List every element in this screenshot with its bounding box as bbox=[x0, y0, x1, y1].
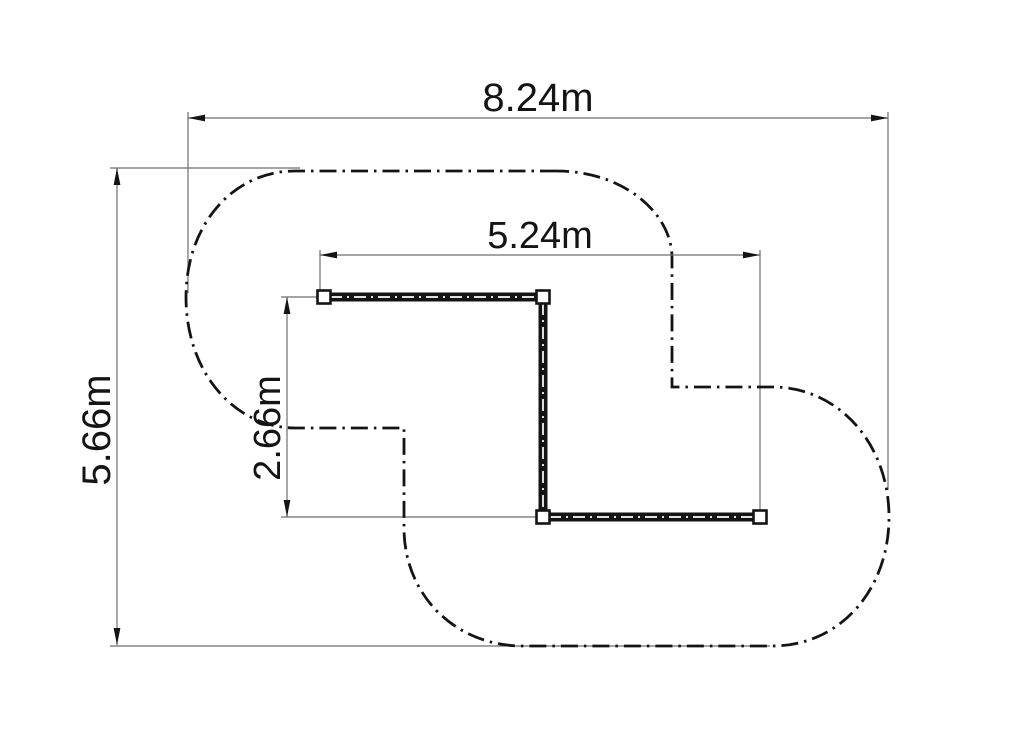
dimension-label-inner-height: 2.66m bbox=[247, 375, 289, 481]
arrowhead-right bbox=[871, 115, 888, 122]
arrowhead-top bbox=[284, 297, 291, 314]
node-square-bottom-left bbox=[537, 511, 550, 524]
dimension-label-overall-width: 8.24m bbox=[482, 76, 593, 120]
dimension-inner-width: 5.24m bbox=[320, 215, 760, 258]
node-square-top-left bbox=[318, 291, 331, 304]
technical-drawing: 8.24m 5.66m 5.24m 2.66m bbox=[0, 0, 1024, 733]
node-square-bottom-right bbox=[754, 511, 767, 524]
dimension-label-overall-height: 5.66m bbox=[75, 374, 119, 485]
arrowhead-right bbox=[743, 252, 760, 259]
arrowhead-bottom bbox=[284, 500, 291, 517]
arrowhead-left bbox=[320, 252, 337, 259]
dimension-inner-height: 2.66m bbox=[247, 297, 290, 517]
arrowhead-left bbox=[188, 115, 205, 122]
wall-segments bbox=[318, 291, 767, 524]
node-square-top-right bbox=[537, 291, 550, 304]
arrowhead-top bbox=[114, 168, 121, 185]
drawing-canvas: 8.24m 5.66m 5.24m 2.66m bbox=[0, 0, 1024, 733]
dimension-overall-height: 5.66m bbox=[75, 168, 120, 645]
extension-lines bbox=[110, 112, 888, 646]
arrowhead-bottom bbox=[114, 628, 121, 645]
dimension-label-inner-width: 5.24m bbox=[487, 215, 593, 257]
dimension-overall-width: 8.24m bbox=[188, 76, 888, 121]
